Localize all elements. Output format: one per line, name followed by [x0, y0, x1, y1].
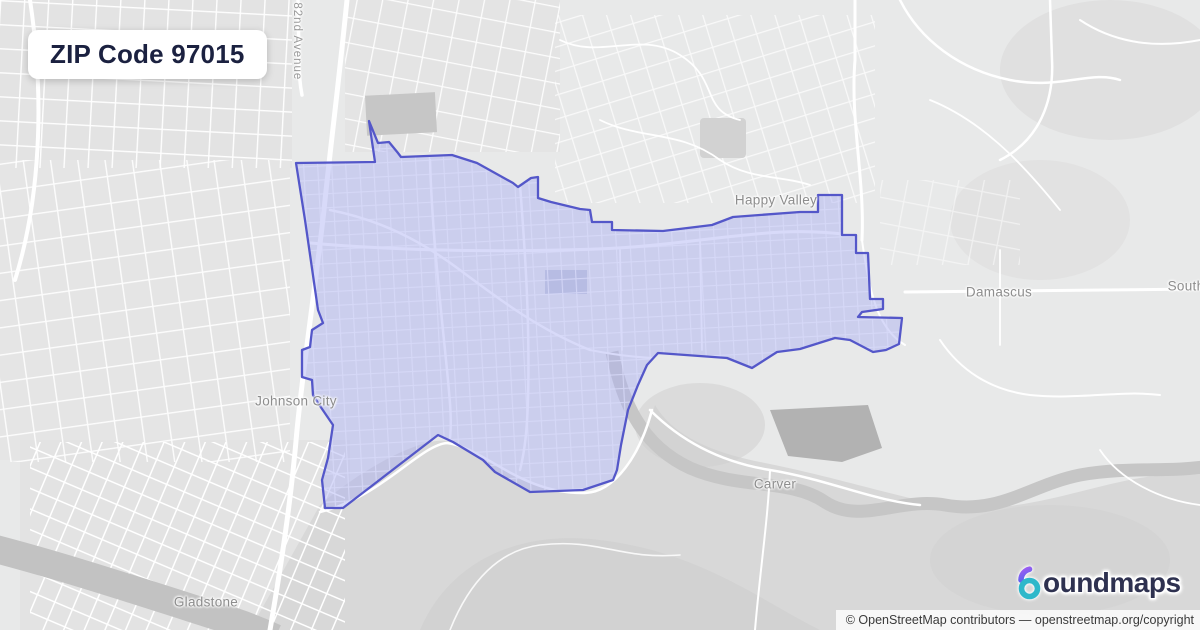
street-grid [880, 180, 1020, 265]
mall-area [365, 92, 437, 136]
attribution-bar: © OpenStreetMap contributors — openstree… [836, 610, 1200, 630]
label-82nd-avenue: t 82nd Avenue [291, 0, 303, 80]
map-canvas[interactable] [0, 0, 1200, 630]
hill-shade [635, 383, 765, 467]
map-view: Happy Valley Damascus South Johnson City… [0, 0, 1200, 630]
label-carver: Carver [754, 477, 796, 492]
street-grid [555, 15, 875, 203]
map-artwork [0, 0, 1200, 630]
label-south-clipped: South [1168, 279, 1200, 294]
street-grid [0, 160, 290, 462]
street-grid [0, 0, 292, 168]
page-title: ZIP Code 97015 [50, 39, 245, 69]
boundmaps-logo[interactable]: oundmaps [1016, 566, 1181, 600]
attribution-link[interactable]: © OpenStreetMap contributors — openstree… [846, 613, 1194, 627]
label-johnson-city: Johnson City [255, 394, 337, 409]
boundmaps-logo-b-icon [1016, 566, 1043, 600]
label-damascus: Damascus [966, 285, 1032, 300]
boundmaps-wordmark: oundmaps [1043, 566, 1181, 600]
zip-title-card: ZIP Code 97015 [28, 30, 267, 79]
label-gladstone: Gladstone [174, 595, 238, 610]
label-happy-valley: Happy Valley [735, 193, 817, 208]
